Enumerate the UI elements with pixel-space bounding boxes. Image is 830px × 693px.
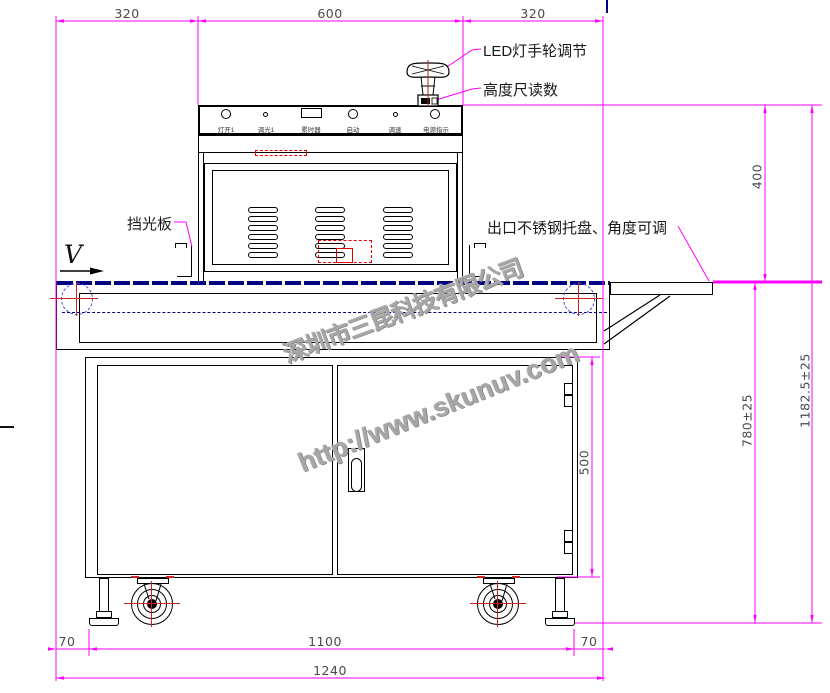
handwheel-icon	[407, 60, 449, 107]
dim-top-right: 320	[503, 6, 563, 21]
callout-outlet-tray: 出口不锈钢托盘、角度可调	[487, 217, 667, 238]
dim-top-middle: 600	[300, 6, 360, 21]
dim-bottom-left-70: 70	[47, 634, 87, 649]
callout-height-gauge: 高度尺读数	[483, 79, 558, 100]
callout-light-shield: 挡光板	[127, 213, 172, 234]
caster-forks	[144, 584, 507, 601]
dim-bottom-right-70: 70	[569, 634, 609, 649]
dimension-lines	[56, 16, 822, 681]
dim-bottom-1100: 1100	[285, 634, 365, 649]
callout-leader-lines	[174, 49, 709, 281]
belt-direction-label: V	[64, 240, 82, 269]
dim-right-door-height: 500	[577, 441, 592, 485]
technical-drawing-canvas: 灯开1 调光1 累时器 启动 调速 电源指示	[0, 0, 830, 693]
dim-right-400: 400	[750, 157, 765, 197]
dimension-arrowheads	[48, 19, 814, 679]
dim-top-left: 320	[97, 6, 157, 21]
dim-bottom-overall: 1240	[290, 663, 370, 678]
dim-right-belt-height: 780±25	[740, 387, 755, 455]
tray-support-strut	[604, 295, 670, 344]
callout-led-handwheel: LED灯手轮调节	[483, 40, 587, 61]
drawing-overlay	[0, 0, 830, 693]
dim-right-overall-height: 1182.5±25	[798, 349, 813, 433]
